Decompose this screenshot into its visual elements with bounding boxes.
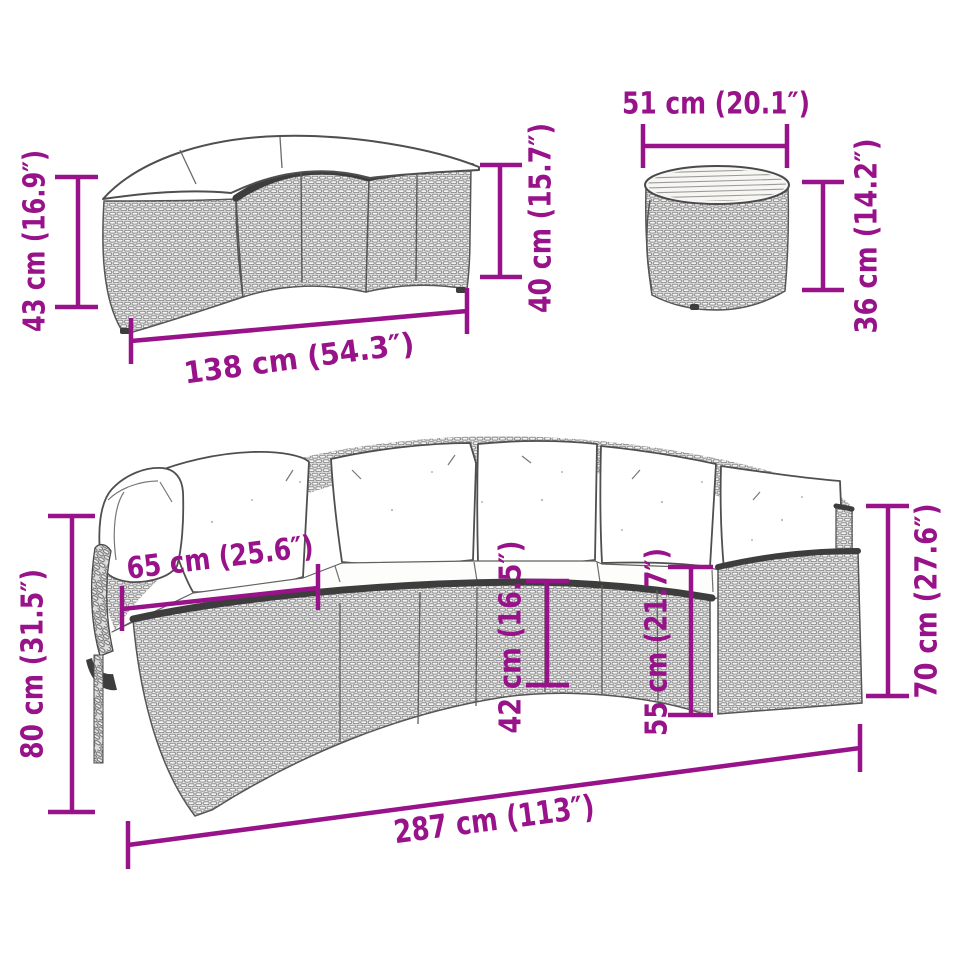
dimension-line (643, 124, 787, 168)
sofa-arm-height-label: 70 cm (27.6″) (910, 504, 945, 699)
sofa-right-arm-back-strip-edge (836, 506, 852, 509)
product-dimension-diagram: 43 cm (16.9″) 40 cm (15.7″) 138 cm (54.3… (0, 0, 955, 955)
bench-height-left-label: 43 cm (16.9″) (18, 150, 53, 332)
bench-width-label: 138 cm (54.3″) (182, 327, 417, 392)
bench-foot-left (120, 328, 130, 334)
dimension-line (480, 165, 522, 277)
table-illustration (645, 166, 790, 310)
diagram-canvas: 43 cm (16.9″) 40 cm (15.7″) 138 cm (54.3… (0, 0, 955, 955)
sofa-back-height-dimension: 80 cm (31.5″) (16, 516, 96, 812)
bench-left-panel (103, 199, 243, 333)
table-diameter-label: 51 cm (20.1″) (622, 87, 810, 122)
dimension-line (866, 506, 909, 696)
sofa-seat-front-height-label: 42 cm (16.5″) (494, 541, 529, 734)
sofa-cushion-3 (331, 443, 476, 564)
table-height-label: 36 cm (14.2″) (850, 139, 885, 334)
bench-foot-right (456, 287, 466, 293)
dimension-line (55, 177, 98, 307)
sofa-seat-back-height-label: 55 cm (21.7″) (640, 548, 675, 736)
sofa-illustration (86, 436, 862, 816)
bench-height-left-dimension: 43 cm (16.9″) (18, 150, 99, 332)
table-foot (690, 304, 699, 310)
bench-height-right-label: 40 cm (15.7″) (524, 123, 559, 313)
bench-right-panel (366, 167, 471, 292)
bench-height-right-dimension: 40 cm (15.7″) (480, 123, 559, 313)
sofa-right-arm (718, 551, 862, 714)
dimension-line (802, 182, 844, 290)
sofa-right-arm-back-strip (836, 506, 852, 552)
sofa-arm-height-dimension: 70 cm (27.6″) (866, 504, 945, 699)
bench-illustration (103, 136, 479, 334)
sofa-left-leg (94, 655, 103, 763)
sofa-back-height-label: 80 cm (31.5″) (16, 569, 51, 759)
table-height-dimension: 36 cm (14.2″) (802, 139, 885, 334)
table-diameter-dimension: 51 cm (20.1″) (622, 87, 810, 169)
